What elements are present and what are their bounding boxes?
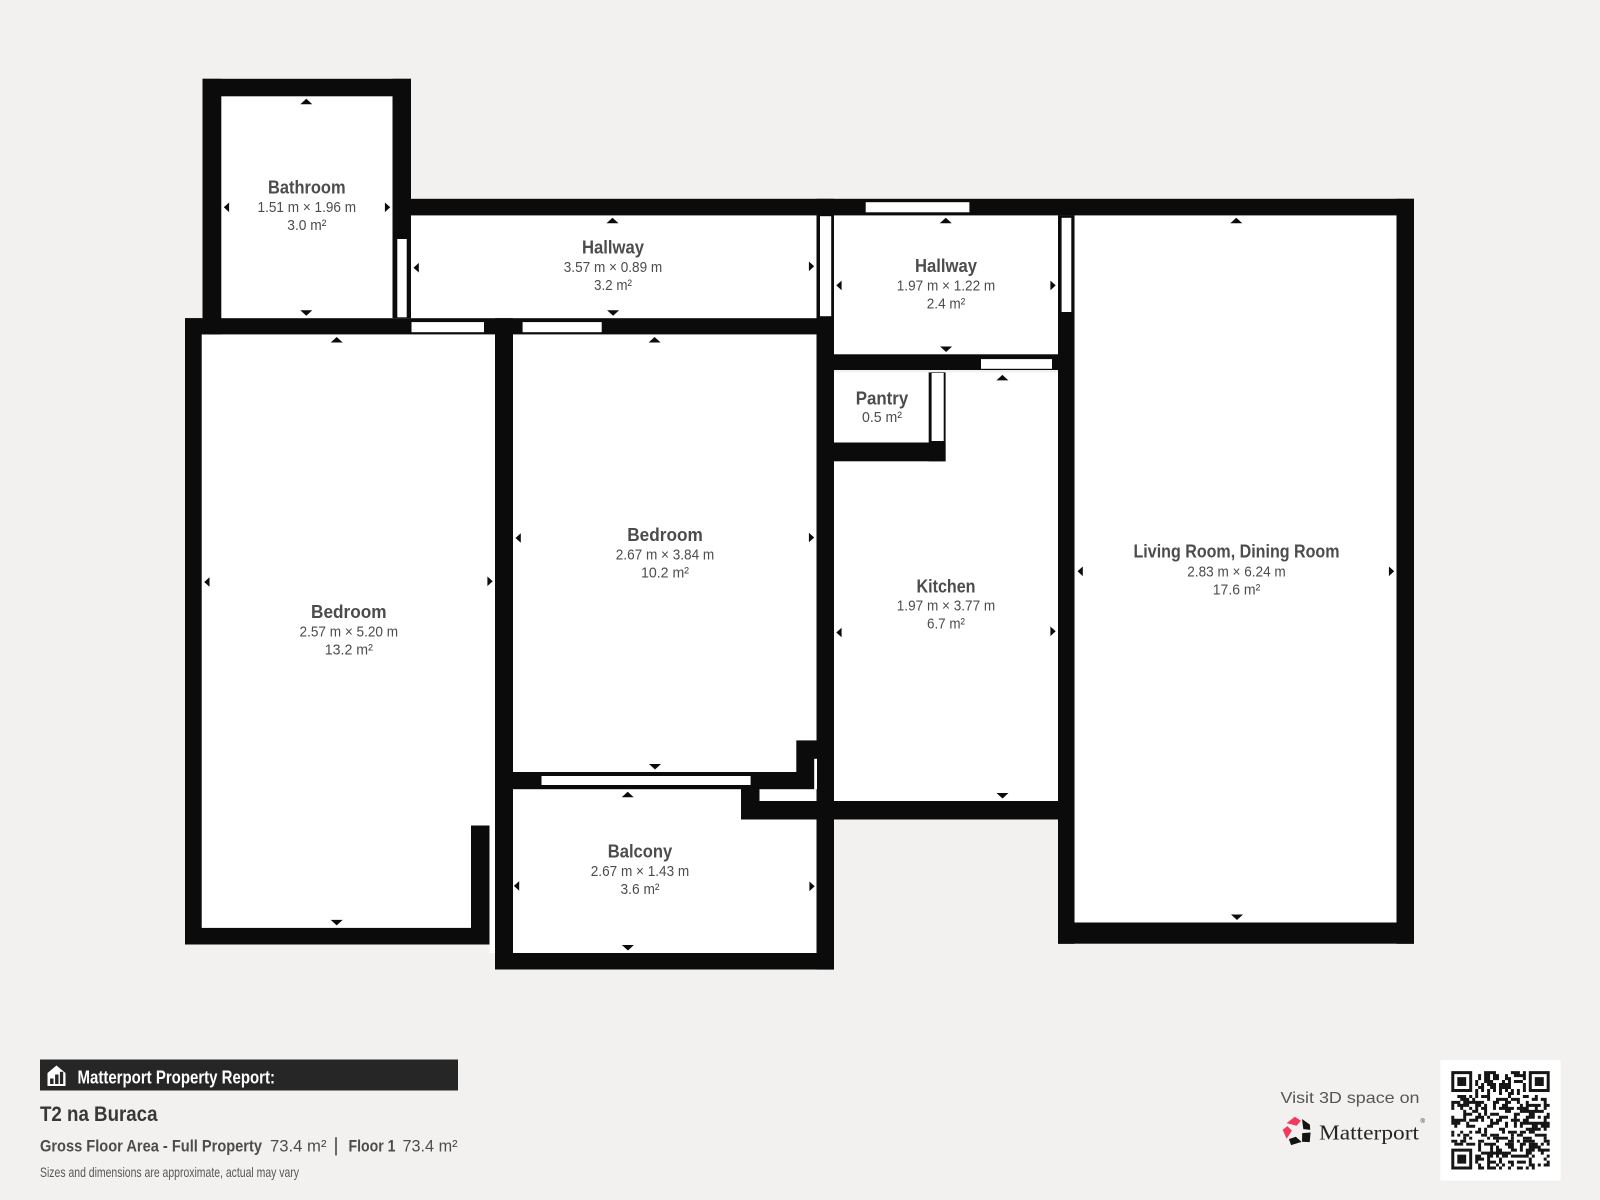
- svg-text:3.0 m²: 3.0 m²: [287, 217, 326, 234]
- svg-text:Bedroom: Bedroom: [627, 524, 703, 545]
- svg-text:2.83 m × 6.24 m: 2.83 m × 6.24 m: [1187, 563, 1286, 580]
- svg-text:Hallway: Hallway: [582, 237, 645, 258]
- svg-text:Bathroom: Bathroom: [268, 177, 346, 198]
- svg-text:2.4 m²: 2.4 m²: [927, 295, 966, 312]
- svg-text:Visit 3D space on: Visit 3D space on: [1281, 1090, 1420, 1107]
- svg-text:1.97 m × 1.22 m: 1.97 m × 1.22 m: [897, 277, 996, 294]
- svg-text:Kitchen: Kitchen: [917, 575, 976, 596]
- svg-text:Balcony: Balcony: [608, 841, 673, 862]
- svg-text:Matterport: Matterport: [1319, 1120, 1419, 1144]
- svg-text:10.2 m²: 10.2 m²: [641, 565, 689, 582]
- svg-text:Floor 1: Floor 1: [349, 1137, 396, 1156]
- svg-text:13.2 m²: 13.2 m²: [325, 642, 373, 659]
- svg-text:17.6 m²: 17.6 m²: [1213, 581, 1261, 598]
- svg-text:3.57 m × 0.89 m: 3.57 m × 0.89 m: [564, 259, 663, 276]
- svg-text:73.4 m²: 73.4 m²: [403, 1137, 458, 1156]
- svg-text:3.2 m²: 3.2 m²: [594, 277, 632, 294]
- svg-text:Bedroom: Bedroom: [311, 601, 387, 622]
- svg-text:2.67 m × 3.84 m: 2.67 m × 3.84 m: [616, 547, 715, 564]
- svg-text:1.51 m × 1.96 m: 1.51 m × 1.96 m: [258, 199, 357, 216]
- svg-text:Sizes and dimensions are appro: Sizes and dimensions are approximate, ac…: [40, 1164, 299, 1180]
- svg-text:Living Room, Dining Room: Living Room, Dining Room: [1134, 541, 1340, 562]
- svg-text:Hallway: Hallway: [915, 255, 978, 276]
- svg-text:2.57 m × 5.20 m: 2.57 m × 5.20 m: [300, 624, 399, 641]
- svg-text:3.6 m²: 3.6 m²: [621, 881, 660, 898]
- svg-text:0.5 m²: 0.5 m²: [862, 409, 902, 426]
- svg-text:6.7 m²: 6.7 m²: [927, 616, 965, 633]
- svg-text:Matterport Property Report:: Matterport Property Report:: [78, 1067, 276, 1088]
- svg-text:T2 na Buraca: T2 na Buraca: [40, 1103, 158, 1126]
- svg-text:®: ®: [1421, 1118, 1426, 1125]
- svg-text:1.97 m × 3.77 m: 1.97 m × 3.77 m: [897, 598, 996, 615]
- svg-text:2.67 m × 1.43 m: 2.67 m × 1.43 m: [591, 863, 690, 880]
- svg-text:Pantry: Pantry: [856, 388, 909, 409]
- svg-text:Gross Floor Area - Full Proper: Gross Floor Area - Full Property: [40, 1137, 262, 1156]
- svg-text:73.4 m²: 73.4 m²: [270, 1137, 327, 1156]
